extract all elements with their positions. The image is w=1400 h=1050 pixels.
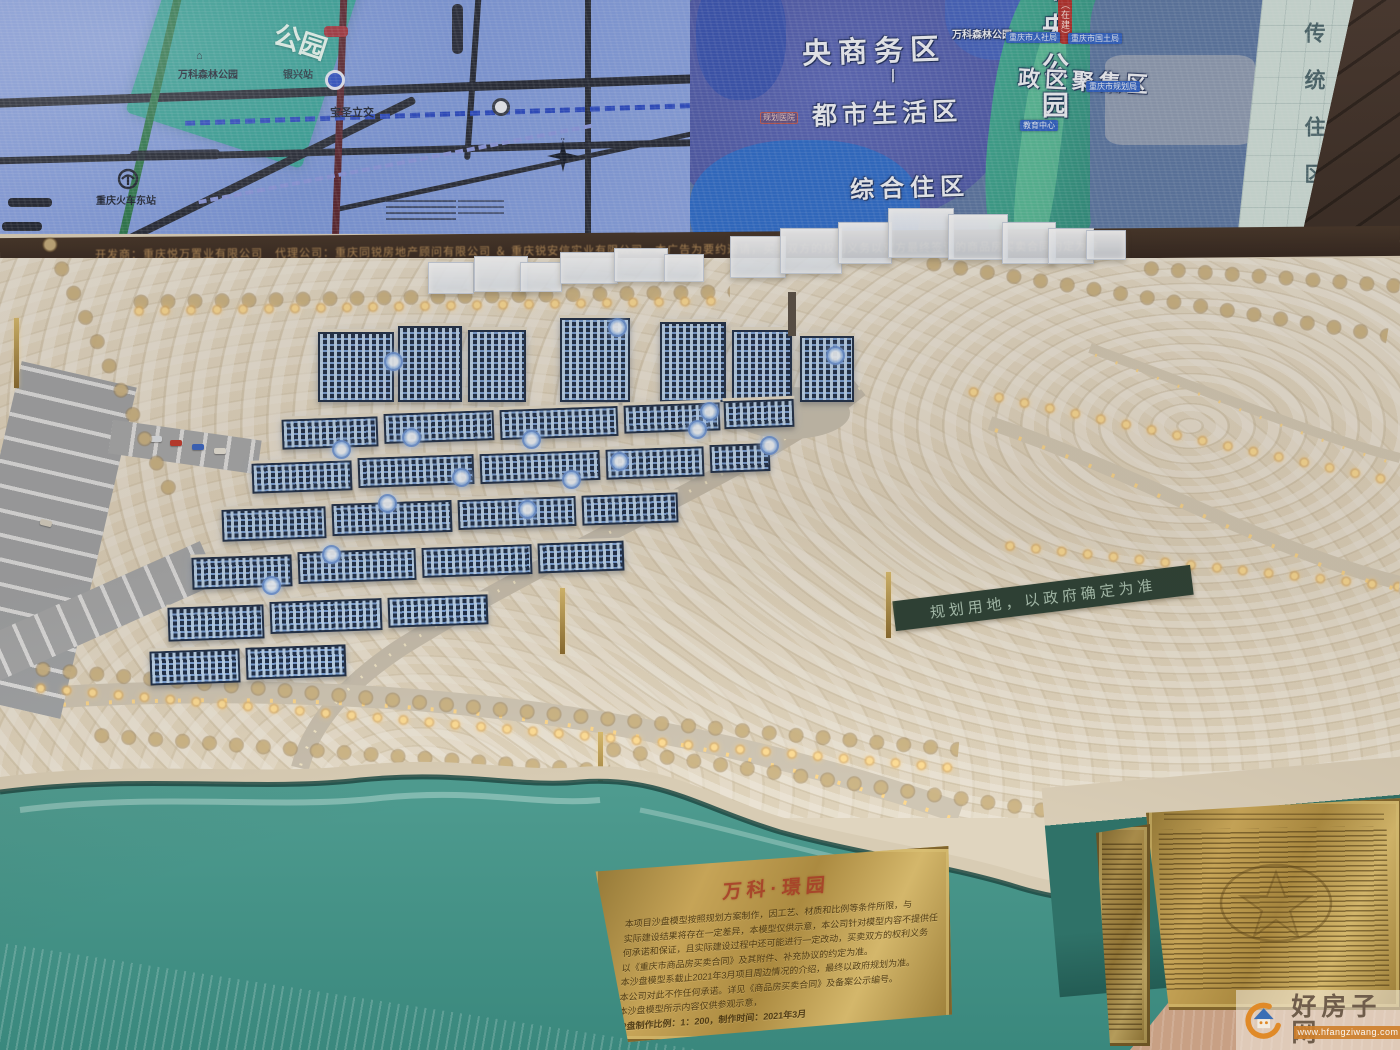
building-number-medallion [700, 402, 719, 421]
led-wall-screen: 公园 万科森林公园 ⌂ 银兴站 宝圣立交 [0, 0, 1400, 234]
metro-line-name-pill [452, 4, 463, 54]
watermark-site-url: www.hfangziwang.com [1294, 1026, 1400, 1039]
lit-terrace-row [167, 604, 264, 641]
model-car [214, 448, 226, 454]
building-number-medallion [402, 428, 421, 447]
photo-of-sales-center-sand-table: 公园 万科森林公园 ⌂ 银兴站 宝圣立交 [0, 0, 1400, 1050]
cbd-label: 央商务区 [801, 25, 946, 72]
lit-terrace-row [269, 598, 382, 634]
model-car [192, 444, 204, 450]
lit-terrace-row [538, 541, 625, 574]
acrylic-building [730, 236, 786, 278]
road-name-pill [8, 198, 52, 207]
lit-terrace-row [724, 399, 795, 429]
building-number-medallion [610, 452, 629, 471]
house-logo-icon [1242, 996, 1285, 1044]
lit-terrace-row [282, 416, 379, 449]
lit-terrace-row [582, 492, 679, 525]
road-name-pill [2, 222, 42, 231]
lit-tower [318, 332, 394, 402]
bureau-pill: 重庆市国土局 [1068, 33, 1122, 44]
interchange-label: 宝圣立交 [330, 104, 374, 120]
lit-terrace-row [149, 648, 240, 685]
metro-station-icon [325, 70, 345, 90]
metro-road-map: 公园 万科森林公园 ⌂ 银兴站 宝圣立交 [0, 0, 690, 234]
lit-tower [398, 326, 462, 402]
forest-park-label: 万科森林公园 [178, 66, 238, 81]
map-legal-smalltext [458, 196, 504, 214]
compass-icon: N [545, 138, 581, 174]
forest-park-small-label: 万科森林公园 [952, 26, 1012, 41]
flag-pole [560, 588, 565, 654]
railway-logo-icon [117, 168, 139, 190]
building-number-medallion [384, 352, 403, 371]
acrylic-building [838, 222, 892, 264]
building-number-medallion [378, 494, 397, 513]
acrylic-building [948, 214, 1008, 260]
sand-table-disclaimer-plaque: 万科·璟园 本项目沙盘模型按照规划方案制作，因工艺、材质和比例等条件所限，与 实… [592, 846, 952, 1042]
building-number-medallion [322, 545, 341, 564]
plaque-content: 万科·璟园 本项目沙盘模型按照规划方案制作，因工艺、材质和比例等条件所限，与 实… [617, 863, 927, 1034]
acrylic-building [1086, 230, 1126, 260]
acrylic-building [888, 208, 954, 258]
model-car [170, 440, 182, 446]
plaque-dense-text [1102, 840, 1142, 1030]
star-emblem-icon [1216, 858, 1336, 948]
building-number-medallion [826, 346, 845, 365]
building-number-medallion [452, 468, 471, 487]
lit-tower [732, 330, 792, 402]
lit-terrace-row [245, 644, 346, 679]
lit-terrace-row [221, 506, 326, 542]
site-watermark: 好房子网 www.hfangziwang.com [1236, 990, 1400, 1050]
station-label: 银兴站 [283, 66, 313, 81]
district-planning-map: 央商务区 丨 都市生活区 万科森林公园 规划医院 中央公园 政区聚集区 （在建）… [690, 0, 1355, 234]
lit-tower [468, 330, 526, 402]
acrylic-building [560, 252, 618, 284]
interchange-icon [492, 98, 510, 116]
acrylic-building [664, 254, 704, 282]
lit-terrace-row [384, 410, 495, 444]
lit-tower [660, 322, 726, 402]
urban-living-label: 都市生活区 [811, 91, 962, 132]
park-label-char: 公园 [269, 13, 332, 67]
building-number-medallion [688, 420, 707, 439]
zone-patch [696, 0, 786, 100]
building-number-medallion [522, 430, 541, 449]
lit-terrace-row [422, 544, 533, 578]
building-number-medallion [562, 470, 581, 489]
rail-label-pill [324, 26, 348, 37]
building-number-medallion [262, 576, 281, 595]
acrylic-building [614, 248, 668, 282]
lit-terrace-row [458, 496, 577, 530]
plaque-title-etching [1164, 812, 1384, 820]
zone-divider: 丨 [886, 66, 900, 86]
lit-terrace-row [297, 548, 416, 584]
mixed-residence-label: 综合住区 [849, 166, 970, 205]
building-number-medallion [332, 440, 351, 459]
map-legal-smalltext [386, 196, 456, 220]
lit-terrace-row [388, 594, 489, 627]
flag-pole [886, 572, 891, 638]
public-notice-plaque [1146, 798, 1400, 1010]
road-line [464, 0, 482, 160]
lit-terrace-row [480, 450, 601, 484]
bureau-pill: 重庆市人社局 [1006, 32, 1060, 43]
railway-station-label: 重庆火车东站 [96, 192, 156, 207]
building-number-medallion [608, 318, 627, 337]
svg-text:N: N [561, 138, 565, 142]
acrylic-building [428, 262, 474, 294]
road-name-pill [130, 149, 220, 161]
planned-hospital-badge: 规划医院 [760, 112, 798, 124]
lit-tower [800, 336, 854, 402]
lit-terrace-row [252, 460, 353, 493]
road-line [585, 0, 591, 234]
flag-pole [14, 318, 19, 388]
edu-center-pill: 教育中心 [1020, 120, 1058, 131]
park-poi-icon: ⌂ [196, 50, 203, 62]
lit-terrace-row [500, 406, 619, 440]
bureau-pill: 重庆市规划局 [1086, 81, 1140, 92]
chimney [788, 292, 796, 336]
building-number-medallion [518, 500, 537, 519]
building-number-medallion [760, 436, 779, 455]
acrylic-building [780, 228, 842, 274]
acrylic-building [520, 262, 562, 292]
